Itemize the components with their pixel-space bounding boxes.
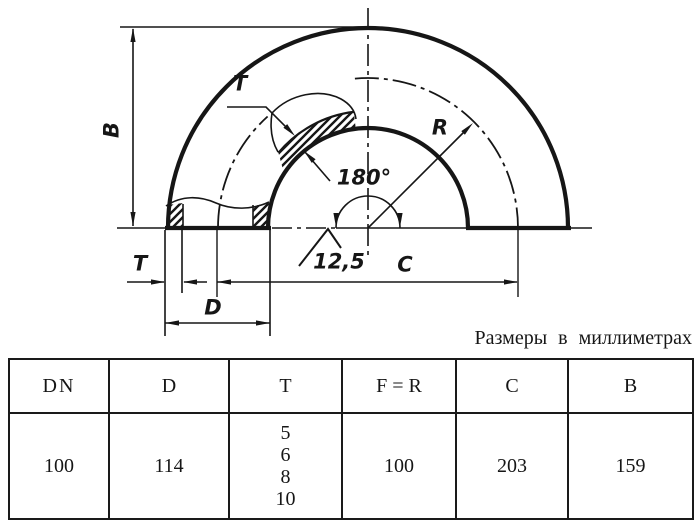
cell-t-value: 6	[230, 444, 341, 466]
col-header-dn: DN	[9, 359, 109, 413]
col-header-t: T	[229, 359, 342, 413]
cell-d: 114	[109, 413, 229, 519]
cell-t-value: 8	[230, 466, 341, 488]
cell-f-r: 100	[342, 413, 456, 519]
cell-t: 5 6 8 10	[229, 413, 342, 519]
angle-label: 180°	[337, 168, 391, 189]
radius-label-R: R	[432, 118, 448, 139]
cell-t-value: 5	[230, 422, 341, 444]
dim-label-C: C	[397, 255, 412, 276]
cell-dn: 100	[9, 413, 109, 519]
wall-thickness-label-bottom: T	[133, 254, 147, 275]
cell-b: 159	[568, 413, 693, 519]
dim-label-B: B	[102, 122, 123, 138]
roughness-value: 12,5	[313, 252, 365, 273]
table-header-row: DN D T F = R C B	[9, 359, 693, 413]
units-caption: Размеры в миллиметрах	[475, 327, 692, 350]
col-header-c: C	[456, 359, 568, 413]
cell-t-value: 10	[230, 488, 341, 510]
table-row: 100 114 5 6 8 10 100 203 159	[9, 413, 693, 519]
wall-thickness-label-top: T	[233, 74, 247, 95]
dimensions-table: DN D T F = R C B 100 114 5 6 8 10	[8, 358, 694, 520]
t-leader	[227, 107, 288, 129]
col-header-f-r: F = R	[342, 359, 456, 413]
dim-label-D: D	[204, 298, 221, 319]
col-header-b: B	[568, 359, 693, 413]
col-header-d: D	[109, 359, 229, 413]
cell-c: 203	[456, 413, 568, 519]
arrowheads	[130, 28, 518, 326]
drawing-sheet: BTR180°12,5CTD Размеры в миллиметрах DN …	[0, 0, 700, 525]
